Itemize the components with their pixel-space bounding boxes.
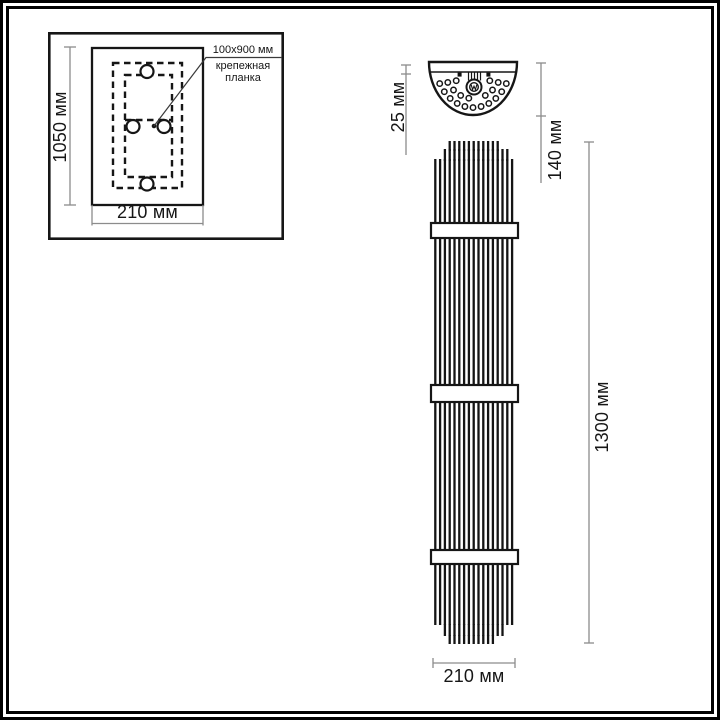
collar-top xyxy=(431,223,518,238)
wall-plate xyxy=(429,62,517,115)
plan-height-dimension-label: 1050 мм xyxy=(50,47,70,207)
plate-screw-left xyxy=(458,73,462,77)
technical-drawing-canvas: 100x900 мм крепежная планка 1050 мм 210 … xyxy=(0,0,720,720)
callout-size-text: 100x900 мм xyxy=(203,44,283,56)
lamp-width-dimension-label: 210 мм xyxy=(424,666,524,686)
collar-bottom xyxy=(431,550,518,564)
callout-word-1: крепежная xyxy=(203,60,283,72)
mounting-plate-callout: 100x900 мм крепежная планка xyxy=(203,44,283,84)
plate-height-dimension-label: 140 мм xyxy=(545,80,565,220)
plate-screw-right xyxy=(486,73,490,77)
plate-depth-dimension-label: 25 мм xyxy=(388,37,408,177)
plan-width-dimension-label: 210 мм xyxy=(97,202,198,222)
lamp-height-dimension-label: 1300 мм xyxy=(592,337,612,497)
collar-middle xyxy=(431,385,518,402)
callout-word-2: планка xyxy=(203,72,283,84)
